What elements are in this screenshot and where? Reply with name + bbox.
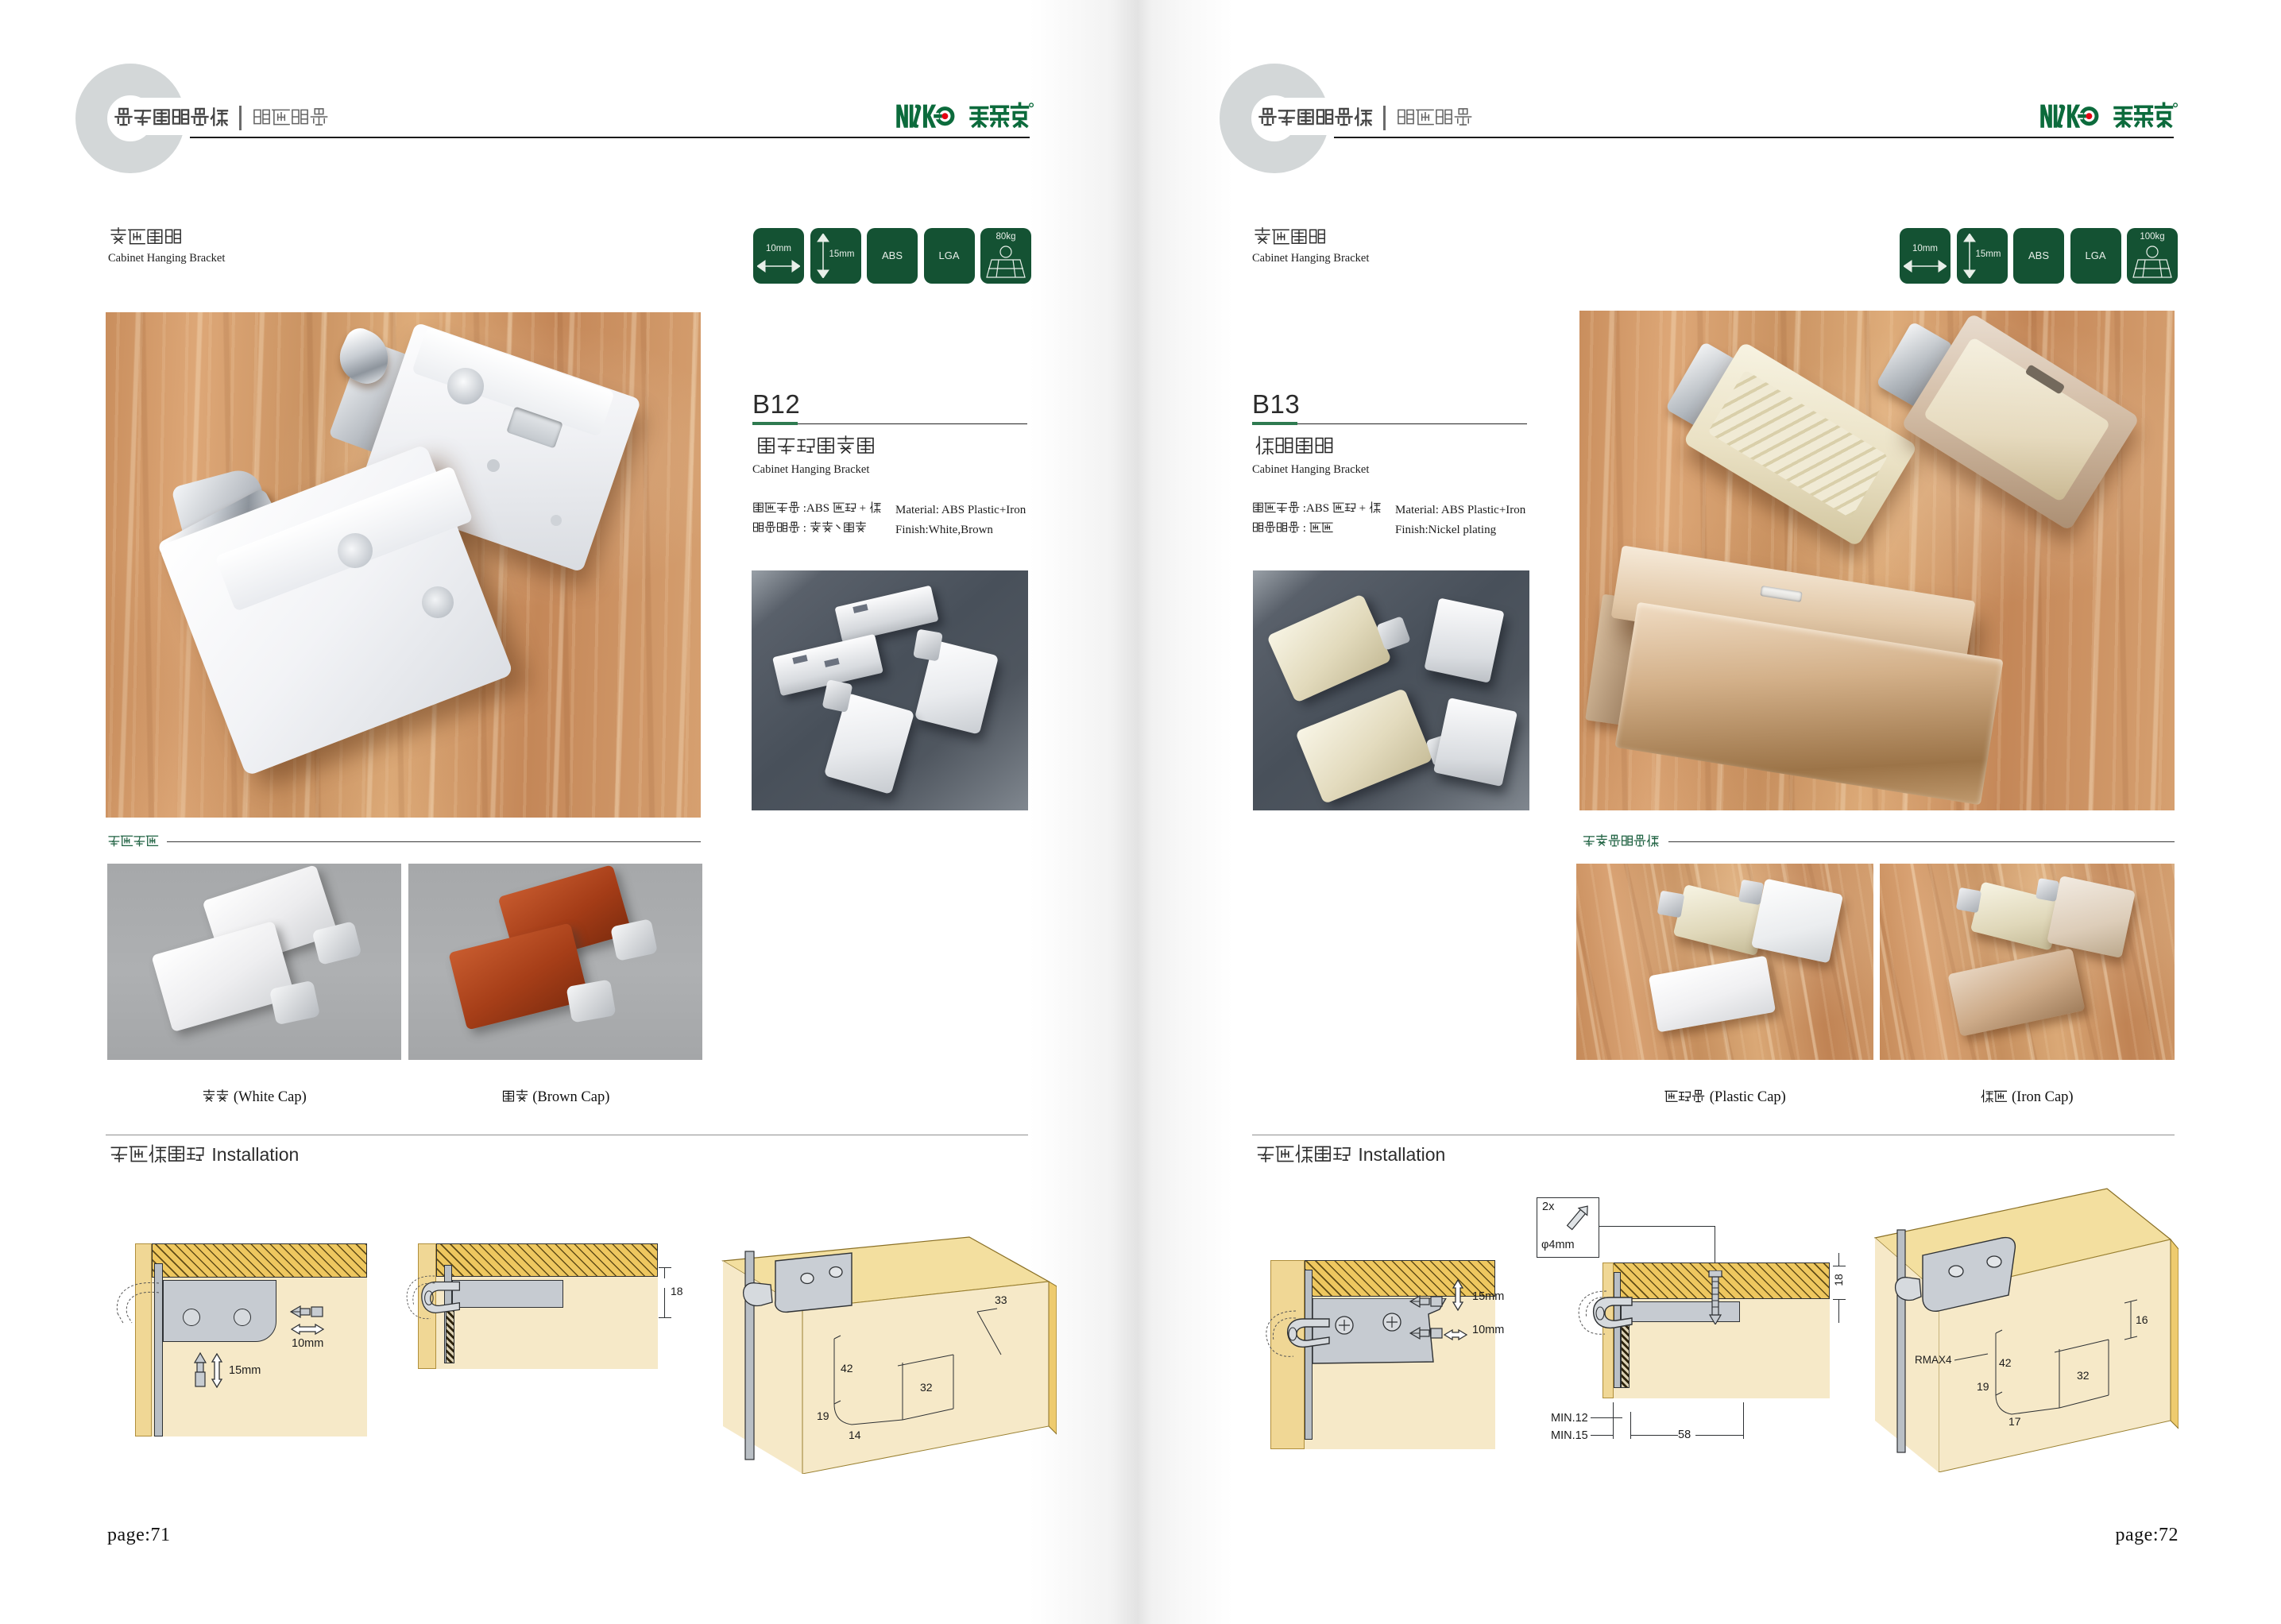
svg-text:32: 32 xyxy=(920,1381,933,1394)
svg-text:19: 19 xyxy=(817,1409,829,1422)
svg-text:14: 14 xyxy=(849,1429,861,1441)
svg-text:42: 42 xyxy=(1999,1356,2012,1369)
svg-text:16: 16 xyxy=(2136,1313,2148,1326)
svg-text:19: 19 xyxy=(1977,1380,1989,1393)
svg-text:42: 42 xyxy=(841,1362,853,1375)
svg-text:33: 33 xyxy=(995,1293,1007,1306)
svg-text:32: 32 xyxy=(2077,1369,2090,1382)
svg-text:RMAX4: RMAX4 xyxy=(1915,1354,1952,1366)
svg-text:17: 17 xyxy=(2008,1415,2021,1428)
